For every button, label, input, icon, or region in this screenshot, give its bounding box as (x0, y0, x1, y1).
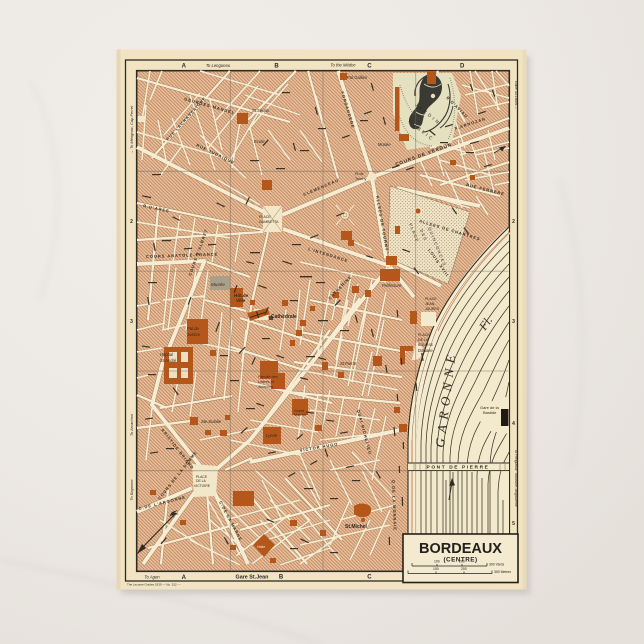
svg-text:Ste.Eulalie: Ste.Eulalie (201, 419, 222, 424)
svg-text:Tourny: Tourny (355, 177, 366, 181)
svg-text:→ To Mérignac, Cap Ferret: → To Mérignac, Cap Ferret (129, 105, 134, 154)
svg-text:Justice: Justice (187, 332, 201, 337)
svg-text:To Agen: To Agen (144, 575, 160, 580)
svg-text:St.Seurin: St.Seurin (252, 108, 270, 113)
svg-text:3: 3 (130, 319, 133, 325)
svg-text:Douane: Douane (418, 348, 433, 353)
svg-text:BORDEAUX: BORDEAUX (419, 541, 502, 557)
svg-text:C: C (367, 575, 372, 581)
svg-text:PONT DE PIERRE: PONT DE PIERRE (427, 465, 490, 471)
svg-text:Lycée: Lycée (266, 433, 278, 438)
svg-text:A: A (182, 64, 187, 70)
svg-text:Marché: Marché (294, 413, 306, 417)
svg-text:200: 200 (459, 560, 465, 564)
svg-text:To the Médoc: To the Médoc (330, 63, 356, 68)
svg-text:DE LA: DE LA (418, 338, 429, 342)
svg-text:GAMBETTA: GAMBETTA (259, 220, 279, 224)
svg-text:To Lengoneu: To Lengoneu (206, 63, 231, 68)
svg-text:D: D (460, 64, 465, 70)
svg-text:A: A (182, 575, 187, 581)
svg-text:5: 5 (512, 521, 515, 527)
svg-text:Faculté des: Faculté des (258, 375, 278, 379)
svg-text:100: 100 (433, 567, 439, 571)
svg-text:JEAN-: JEAN- (425, 302, 436, 306)
svg-text:Musée: Musée (211, 282, 225, 287)
svg-text:Pal.Gallien: Pal.Gallien (347, 75, 368, 80)
svg-text:Cathédrale: Cathédrale (271, 314, 297, 320)
svg-text:To Arcachon: To Arcachon (129, 413, 134, 436)
svg-text:Gare St.Jean: Gare St.Jean (236, 575, 269, 581)
svg-text:Halle: Halle (257, 545, 265, 549)
svg-text:Lettres et: Lettres et (258, 380, 275, 384)
svg-text:Préfecture: Préfecture (382, 283, 402, 288)
svg-text:Pl.de: Pl.de (355, 172, 364, 176)
svg-text:St.Michel: St.Michel (345, 524, 368, 530)
svg-text:4: 4 (512, 421, 515, 427)
svg-text:2: 2 (130, 219, 133, 225)
svg-text:To Périgueux, Toulouse, Angoul: To Périgueux, Toulouse, Angoulême (514, 449, 518, 507)
svg-text:C: C (367, 64, 372, 70)
svg-text:2: 2 (512, 219, 515, 225)
svg-text:Hôpital: Hôpital (160, 352, 173, 357)
svg-text:BOURSE: BOURSE (418, 343, 434, 347)
svg-text:3: 3 (512, 319, 515, 325)
svg-text:Ville: Ville (236, 298, 246, 303)
svg-text:Gare St.Louis→: Gare St.Louis→ (514, 81, 519, 109)
svg-text:Bastide: Bastide (483, 410, 497, 415)
svg-text:St.André: St.André (160, 358, 177, 363)
svg-text:To Bayonne: To Bayonne (129, 479, 134, 501)
svg-text:St.Pierre: St.Pierre (340, 361, 357, 366)
svg-text:B: B (279, 575, 284, 581)
svg-text:PLACE: PLACE (259, 215, 271, 219)
svg-text:Sciences: Sciences (258, 385, 274, 389)
svg-text:JAURES: JAURES (425, 307, 440, 311)
svg-text:200: 200 (461, 567, 467, 571)
svg-text:100: 100 (434, 560, 440, 564)
svg-text:300 Yards: 300 Yards (489, 563, 504, 567)
svg-text:PLACE: PLACE (425, 297, 437, 301)
svg-text:Ecole: Ecole (254, 139, 265, 144)
svg-text:Musée: Musée (378, 142, 391, 147)
svg-text:The Leconte Guides 1930 — No.: The Leconte Guides 1930 — No. 512 — (127, 583, 181, 587)
svg-text:Pal.de: Pal.de (187, 326, 200, 331)
svg-text:300 Metres: 300 Metres (494, 570, 511, 574)
svg-text:DE LA: DE LA (196, 479, 207, 483)
svg-text:PLACE: PLACE (418, 333, 430, 337)
svg-text:VICTOIRE: VICTOIRE (194, 484, 211, 488)
svg-text:B: B (274, 64, 279, 70)
